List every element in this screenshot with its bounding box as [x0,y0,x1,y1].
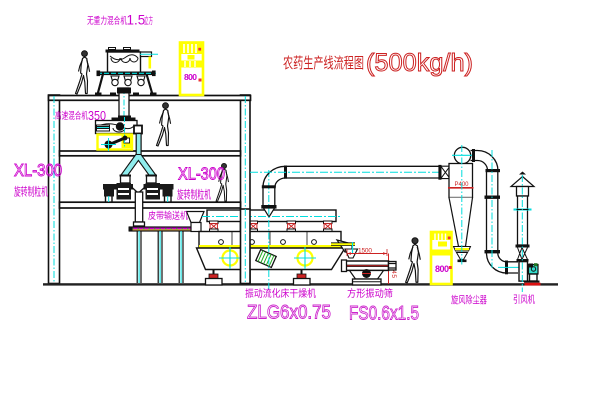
svg-text:皮带输送机: 皮带输送机 [148,210,188,222]
svg-text:旋转制粒机: 旋转制粒机 [14,185,48,199]
svg-text:立方: 立方 [144,15,153,27]
svg-text:旋转制粒机: 旋转制粒机 [177,188,211,202]
svg-text:800: 800 [435,264,449,274]
svg-text:ZLG6x0.75: ZLG6x0.75 [247,303,331,324]
svg-text:1500: 1500 [358,248,372,255]
svg-text:旋风除尘器: 旋风除尘器 [451,294,487,307]
svg-text:无重力混合机: 无重力混合机 [87,15,127,27]
svg-text:XL-300: XL-300 [178,164,225,184]
svg-text:350: 350 [88,109,106,123]
svg-text:农药生产线流程图: 农药生产线流程图 [283,55,364,72]
svg-text:1.5: 1.5 [127,13,146,28]
svg-text:800: 800 [184,72,197,82]
svg-text:高速混合机: 高速混合机 [55,110,88,122]
svg-text:FS0.6x1.5: FS0.6x1.5 [349,304,419,325]
svg-text:(500kg/h): (500kg/h) [366,49,473,77]
svg-text:振动流化床干燥机: 振动流化床干燥机 [245,287,316,300]
svg-text:XL-300: XL-300 [14,160,62,180]
svg-text:方形振动筛: 方形振动筛 [347,287,393,300]
svg-text:引风机: 引风机 [513,293,535,306]
